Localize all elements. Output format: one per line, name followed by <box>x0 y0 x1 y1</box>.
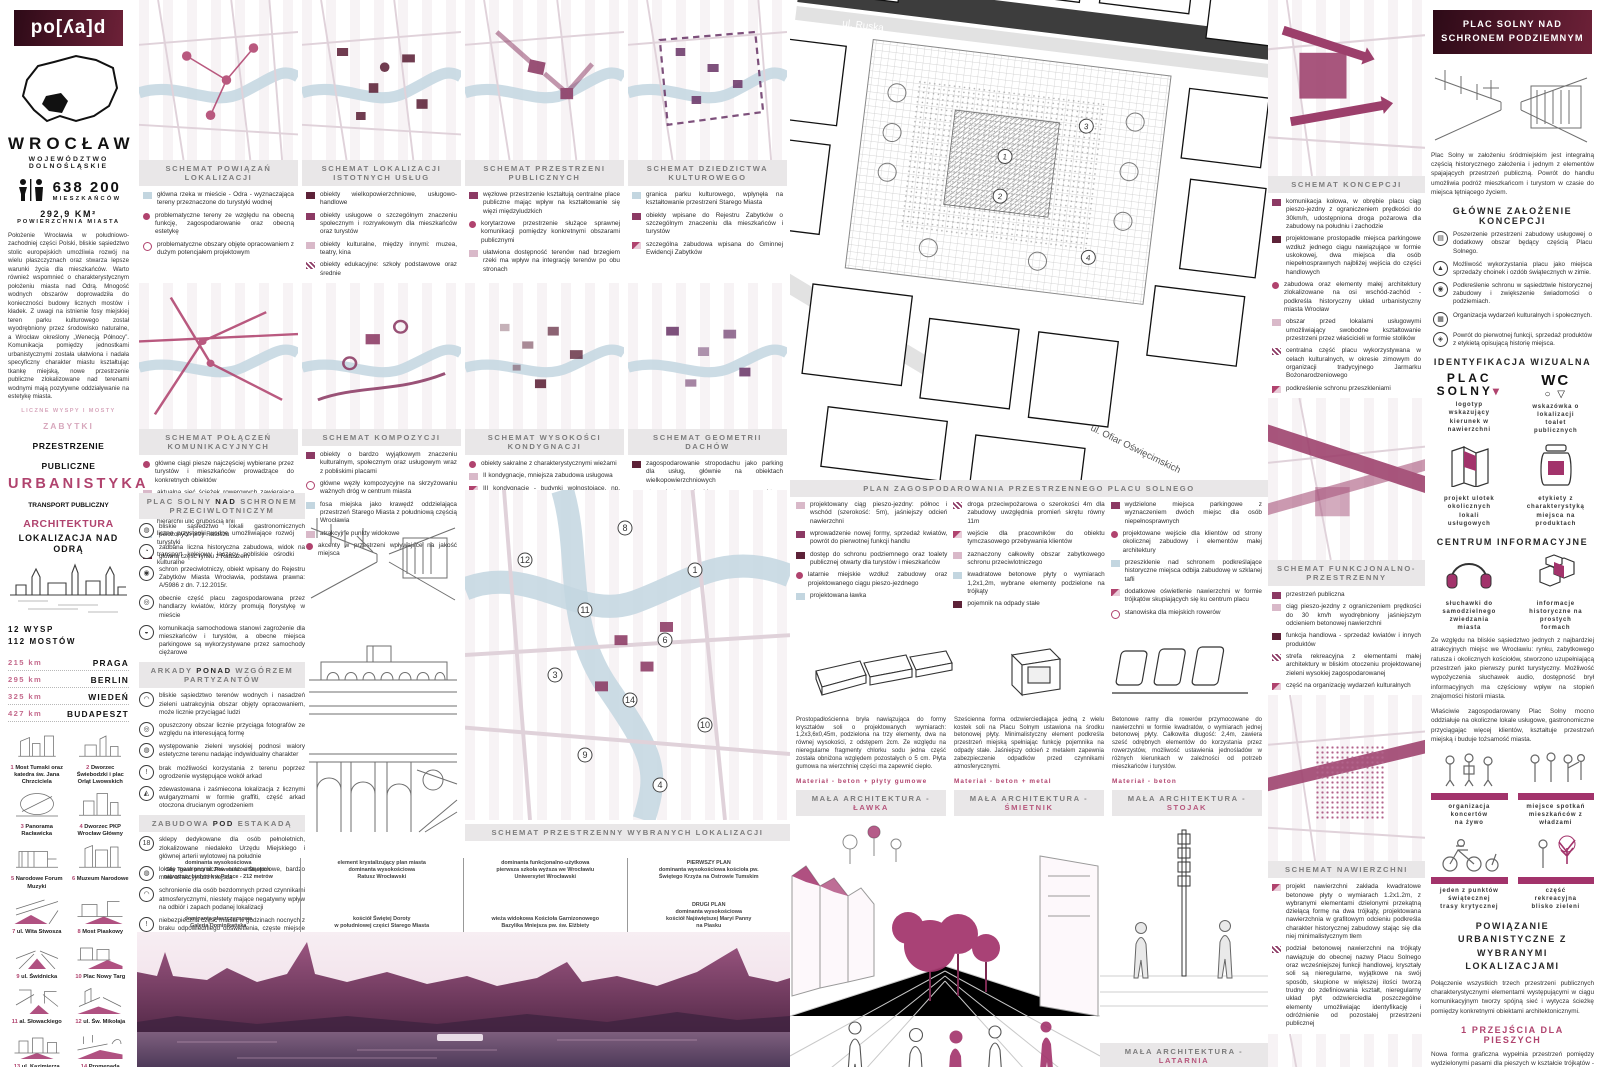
legend-item: obiekty wpisane do Rejestru Zabytków o s… <box>632 212 783 237</box>
distance-list: 215 kmPRAGA 295 kmBERLIN 325 kmWIEDEŃ 42… <box>8 654 129 722</box>
map-powiazan-lokalizacji <box>139 0 298 160</box>
svg-text:1: 1 <box>692 565 697 575</box>
bench-title: MAŁA ARCHITEKTURA - ŁAWKA <box>796 790 946 816</box>
legend-item: granica parku kulturowego, wpłynęła na k… <box>632 191 783 208</box>
culture-icon <box>306 242 315 249</box>
legend-item: obszar przed lokalami usługowymi umożliw… <box>1272 318 1421 343</box>
bin-description: Sześcienna forma odzwierciedlająca jedną… <box>954 717 1104 772</box>
section-plac-solny-schron: PLAC SOLNY NAD SCHRONEM PRZECIWLOTNICZYM… <box>137 493 307 657</box>
event-zone-icon <box>1272 683 1281 690</box>
concept-item: ▦Organizacja wydarzeń kulturalnych i spo… <box>1433 312 1592 327</box>
bike-station-icon <box>1111 610 1120 619</box>
map-kompozycji <box>302 283 461 429</box>
sacral-icon <box>469 461 476 468</box>
axis-icon <box>1272 282 1279 289</box>
jar-icon <box>1538 443 1574 487</box>
pictogram: miejsce spotkań mieszkańców z władzami <box>1518 750 1595 827</box>
composition-node-icon <box>306 481 315 490</box>
landmark-item: 9 ul. Świdnicka <box>8 939 66 981</box>
concept-schematics-column: SCHEMAT KONCEPCJI komunikacja kołowa, w … <box>1268 0 1425 1067</box>
glazing-icon <box>1111 560 1120 567</box>
przejscia-title: 1 PRZEJŚCIA DLA PIESZYCH <box>1431 1025 1594 1045</box>
keyword: TRANSPORT PUBLICZNY <box>28 502 109 509</box>
schematic-title: SCHEMAT PRZESTRZENI PUBLICZNYCH <box>465 160 624 186</box>
legend-item: korytarzowe przestrzenie służące sprawne… <box>469 220 620 245</box>
legend-item: stanowiska dla miejskich rowerów <box>1111 609 1262 619</box>
svg-text:14: 14 <box>625 695 635 705</box>
lantern-visualisation <box>1100 816 1268 1043</box>
site-analysis-texts: PLAC SOLNY NAD SCHRONEM PRZECIWLOTNICZYM… <box>137 490 307 858</box>
info-centre-grid: słuchawki do samodzielnego zwiedzania mi… <box>1431 552 1594 632</box>
wc-logotype: WC <box>1518 372 1595 389</box>
parking-icon <box>1111 502 1120 509</box>
koncepcja-legend: komunikacja kołowa, w obrębie placu ciąg… <box>1272 198 1421 393</box>
funkcjonalno-legend: przestrzeń publiczna ciąg pieszo-jezdny … <box>1272 591 1421 690</box>
legend-item: zagospodarowanie stropodachu jako parkin… <box>632 460 783 485</box>
competition-board: po[ʎa]d WROCŁAW WOJEWÓDZTWO DOLNOŚLĄSKIE… <box>0 0 1600 1067</box>
estakada-sketch <box>307 740 459 844</box>
concept-item: ◉Podkreślenie schronu w sąsiedztwie hist… <box>1433 282 1592 307</box>
legend-item: obiekty sakralne z charakterystycznymi w… <box>469 460 620 468</box>
legend-item: dodatkowe oświetlenie nawierzchni w form… <box>1111 588 1262 605</box>
corridor-icon <box>469 221 476 228</box>
funkcjonalno-title: SCHEMAT FUNKCJONALNO-PRZESTRZENNY <box>1268 560 1425 586</box>
legend-item: wprowadzenie nowej formy, sprzedaż kwiat… <box>796 530 947 547</box>
tree-icon: ◍ <box>139 743 154 758</box>
area-value: 292,9 KM² <box>8 209 129 219</box>
concept-item: ▲Możliwość wykorzystania placu jako miej… <box>1433 261 1592 277</box>
public-space-icon <box>1272 592 1281 599</box>
koncepcja-title: SCHEMAT KONCEPCJI <box>1268 176 1425 193</box>
feature-item: ◉schron przeciwlotniczy, obiekt wpisany … <box>139 566 305 591</box>
legend-item: główne ciągi piesze najczęściej wybieran… <box>143 460 294 485</box>
trade-function-icon <box>1272 633 1281 640</box>
spatial-scheme-map: 81211163141094 SCHEMAT PRZESTRZENNY WYBR… <box>465 490 790 858</box>
concept-intro: Plac Solny w założeniu śródmiejskim jest… <box>1431 151 1594 197</box>
legend-item: komunikacja kołowa, w obrębie placu ciąg… <box>1272 198 1421 231</box>
service-frontage-icon <box>1272 319 1281 326</box>
svg-text:9: 9 <box>582 750 587 760</box>
glowne-zalozenie-list: ▤Poszerzenie przestrzeni zabudowy usługo… <box>1433 231 1592 348</box>
legend-item: przestrzeń publiczna <box>1272 591 1421 599</box>
schematics-row-1: SCHEMAT POWIĄZAŃ LOKALIZACJI główna rzek… <box>137 0 790 283</box>
nawierzchnia-legend: projekt nawierzchni zakłada kwadratowe b… <box>1272 883 1421 1029</box>
schematic-legend: granica parku kulturowego, wpłynęła na k… <box>632 191 783 257</box>
riverside-icon <box>469 250 478 257</box>
feature-item: ◎opuszczony obszar licznie przyciąga fot… <box>139 722 305 738</box>
distance-row: 215 kmPRAGA <box>8 654 129 671</box>
legend-item: część na organizację wydarzeń kulturalny… <box>1272 682 1421 690</box>
schematic-title: SCHEMAT GEOMETRII DACHÓW <box>628 429 787 455</box>
centrum-title: CENTRUM INFORMACYJNE <box>1431 537 1594 547</box>
info-item: słuchawki do samodzielnego zwiedzania mi… <box>1431 552 1508 632</box>
identity-item: etykiety z charakterystyką miejsca na pr… <box>1518 443 1595 527</box>
bin-title: MAŁA ARCHITEKTURA - ŚMIETNIK <box>954 790 1104 816</box>
key-object-icon <box>306 452 315 459</box>
legend-item: problematyczne obszary objęte opracowani… <box>143 241 294 258</box>
schematic-tile: SCHEMAT PRZESTRZENI PUBLICZNYCH węzłowe … <box>463 0 626 283</box>
legend-item: obiekty kulturalne, między innymi: muzea… <box>306 241 457 258</box>
nawierzchnia-title: SCHEMAT NAWIERZCHNI <box>1268 861 1425 878</box>
feature-item: ◔zadbana liczna historyczna zabudowa, wi… <box>139 544 305 560</box>
legend-item: wydzielone miejsca parkingowe z wyznacze… <box>1111 501 1262 526</box>
svg-text:12: 12 <box>520 555 530 565</box>
schematic-legend: główna rzeka w mieście - Odra - wyznacza… <box>143 191 294 257</box>
section-title: PLAC SOLNY NAD SCHRONEM PRZECIWLOTNICZYM <box>139 493 305 519</box>
landmark-item: 3 Panorama Racławicka <box>8 789 66 838</box>
panorama-label: DRUGI PLAN dominanta wysokościowa kośció… <box>631 902 788 930</box>
concept-item: ◈Powrót do pierwotnej funkcji, sprzedaż … <box>1433 332 1592 348</box>
lantern-column: MAŁA ARCHITEKTURA - LATARNIA Wysoka mini… <box>1100 816 1268 1067</box>
two-storey-icon <box>469 473 478 480</box>
keyword: URBANISTYKA <box>8 475 129 493</box>
plac-solny-sketch <box>1431 60 1591 146</box>
pedestrian-lane-icon <box>796 502 805 509</box>
bench-material: Materiał - beton + płyty gumowe <box>796 778 946 785</box>
landmark-item: 11 al. Słowackiego <box>8 984 66 1026</box>
bench-description: Prostopadłościenna bryła nawiązująca do … <box>796 717 946 772</box>
bike-route-icon <box>1436 834 1502 876</box>
region-subtitle: WOJEWÓDZTWO DOLNOŚLĄSKIE <box>8 156 129 170</box>
pedestrian-route-icon <box>143 461 150 468</box>
keyword: ZABYTKI <box>43 421 94 431</box>
schematic-tile: SCHEMAT DZIEDZICTWA KULTUROWEGO granica … <box>626 0 789 283</box>
map-nawierzchni <box>1268 695 1425 861</box>
site-plan-drawing: 1234 ul. Ruska ul. Ofiar Oświęcimskich <box>790 0 1268 480</box>
furniture-descriptions: Prostopadłościenna bryła nawiązująca do … <box>790 711 1268 785</box>
population-value: 638 200 <box>53 179 122 196</box>
client-entrance-icon <box>1111 531 1118 538</box>
site-analysis-zone: PLAC SOLNY NAD SCHRONEM PRZECIWLOTNICZYM… <box>137 490 790 858</box>
landmark-item: 4 Dworzec PKP Wrocław Główny <box>72 789 130 838</box>
legend-item: szczególna zabudowa wpisana do Gminnej E… <box>632 241 783 258</box>
site-sketches <box>307 490 465 858</box>
recreation-zone-icon <box>1272 654 1281 661</box>
headphones-icon <box>1443 552 1495 592</box>
lantern-icon <box>796 572 803 579</box>
legend-item: centralna część placu wykorzystywana w c… <box>1272 347 1421 380</box>
monument-icon: ◉ <box>139 566 154 581</box>
furniture-title-bars: MAŁA ARCHITEKTURA - ŁAWKA MAŁA ARCHITEKT… <box>790 785 1268 816</box>
keyword: PRZESTRZENIE PUBLICZNE <box>33 441 105 471</box>
spatial-scheme-title: SCHEMAT PRZESTRZENNY WYBRANYCH LOKALIZAC… <box>465 824 790 841</box>
population-stat: 638 200 MIESZKAŃCÓW <box>8 178 129 202</box>
poland-map <box>16 54 121 132</box>
concept-item: ▤Poszerzenie przestrzeni zabudowy usługo… <box>1433 231 1592 256</box>
feature-item: ◎obecnie część placu zagospodarowana prz… <box>139 595 305 620</box>
przejscia-text: Nowa forma graficzna wypełnia przestrzeń… <box>1431 1050 1594 1067</box>
plan-legend: projektowany ciąg pieszo-jezdny: północ … <box>790 497 1268 627</box>
svg-text:11: 11 <box>580 605 589 615</box>
lantern-title: MAŁA ARCHITEKTURA - LATARNIA <box>1100 1043 1268 1067</box>
ponad-logo: po[ʎa]d <box>14 10 123 46</box>
furniture-sketches <box>790 627 1268 711</box>
legend-item: strefa rekreacyjna z elementami małej ar… <box>1272 653 1421 678</box>
schematic-title: SCHEMAT KOMPOZYCJI <box>302 429 461 446</box>
panorama-label: PIERWSZY PLAN dominanta wysokościowa koś… <box>631 860 788 881</box>
pictogram: jeden z punktów świątecznej trasy krytyc… <box>1431 834 1508 911</box>
landmark-item: 2 Dworzec Świebodzki i plac Orląt Lwowsk… <box>72 730 130 786</box>
arkady-bridge-sketch <box>307 622 459 726</box>
salt-pattern-icon <box>1272 946 1281 953</box>
map-koncepcji <box>1268 0 1425 176</box>
distance-row: 295 kmBERLIN <box>8 671 129 688</box>
legend-item: ciąg pieszo-jezdny z ograniczeniem prędk… <box>1272 603 1421 628</box>
feature-item: !brak możliwości korzystania z terenu po… <box>139 765 305 781</box>
svg-text:6: 6 <box>662 635 667 645</box>
panorama-label: element krystalizujący plan miasta domin… <box>304 860 461 881</box>
problem-area-icon <box>143 213 150 220</box>
river-swatch-icon <box>143 192 152 199</box>
concrete-slab-icon <box>953 572 962 579</box>
christmas-tree-icon: ▲ <box>1433 261 1448 276</box>
city-intro-paragraph: Położenie Wrocławia w południowo-zachodn… <box>8 232 129 402</box>
landmark-item: 14 Promenada Staromiejska <box>72 1029 130 1067</box>
services-icon <box>306 213 315 220</box>
schematic-title: SCHEMAT LOKALIZACJI ISTOTNYCH USŁUG <box>302 160 461 186</box>
bunker-outline-icon <box>953 552 962 559</box>
powiazanie-title: POWIĄZANIE URBANISTYCZNE Z WYBRANYMI LOK… <box>1431 920 1594 974</box>
pictogram: część rekreacyjna blisko zieleni <box>1518 834 1595 911</box>
legend-item: zaznaczony całkowity obszar zabytkowego … <box>953 551 1104 568</box>
centrum-paragraph-1: Ze względu na bliskie sąsiedztwo jednych… <box>1431 636 1594 701</box>
centrum-paragraph-2: Właściwie zagospodarowany Plac Solny moc… <box>1431 707 1594 744</box>
glazing-accent-icon <box>1272 386 1281 393</box>
legend-item: II kondygnacje, mniejsza zabudowa usługo… <box>469 472 620 480</box>
legend-item: zabudowa oraz elementy małej architektur… <box>1272 281 1421 314</box>
keyword: LICZNE WYSPY I MOSTY <box>8 408 129 415</box>
parking-steps-icon <box>1272 236 1281 243</box>
bench-sketch <box>808 637 958 701</box>
legend-item: projektowana ławka <box>796 592 947 600</box>
landmark-item: 13 ul. Kazimierza Pułaskiego <box>8 1029 66 1067</box>
feature-item: ◭zdewastowana i zaśmiecona lokalizacja z… <box>139 786 305 811</box>
keyword: LOKALIZACJA NAD ODRĄ <box>8 533 129 555</box>
map-polaczen-komunikacyjnych <box>139 283 298 429</box>
pictogram: organizacja koncertów na żywo <box>1431 750 1508 827</box>
calendar-events-icon: ▦ <box>1433 312 1448 327</box>
registry-monument-icon <box>632 213 641 220</box>
legend-item: dostęp do schronu podziemnego oraz toale… <box>796 551 947 568</box>
section-title: ZABUDOWA POD ESTAKADĄ <box>139 815 305 832</box>
bridges-stat: 112 MOSTÓW <box>8 637 129 646</box>
schematic-title: SCHEMAT POŁĄCZEŃ KOMUNIKACYJNYCH <box>139 429 298 455</box>
panorama-labels: dominanta wysokościowa Sky Tower przy ul… <box>137 858 790 932</box>
map-dziedzictwa-kulturowego <box>628 0 787 160</box>
shop-expansion-icon: ▤ <box>1433 231 1448 246</box>
shelter-access-icon <box>796 552 805 559</box>
concert-icon <box>1436 750 1502 792</box>
legend-item: przeszklenie nad schronem podkreślające … <box>1111 559 1262 584</box>
legend-item: wejście dla pracowników do obiektu tymcz… <box>953 530 1104 547</box>
info-item: informacje historyczne na prostych forma… <box>1518 552 1595 632</box>
section-arkady: ARKADY PONAD WZGÓRZEM PARTYZANTÓW ◠blisk… <box>137 662 307 810</box>
landmark-item: 8 Most Piaskowy <box>72 894 130 936</box>
staff-entrance-icon <box>953 531 962 538</box>
legend-item: projektowane wejście dla klientów od str… <box>1111 530 1262 555</box>
node-space-icon <box>469 192 478 199</box>
water-green-icon: ◠ <box>139 692 154 707</box>
product-label-icon: ◈ <box>1433 332 1448 347</box>
leaflet-icon <box>1446 443 1492 487</box>
schematic-legend: węzłowe przestrzenie kształtują centraln… <box>469 191 620 274</box>
legend-item: obiekty edukacyjne: szkoły podstawowe or… <box>306 261 457 278</box>
svg-text:8: 8 <box>622 523 627 533</box>
legend-item: główna rzeka w mieście - Odra - wyznacza… <box>143 191 294 208</box>
bench-icon <box>796 593 805 600</box>
fire-road-icon <box>953 502 962 509</box>
bunker-awareness-icon: ◉ <box>1433 282 1448 297</box>
area-label: POWIERZCHNIA MIASTA <box>8 219 129 225</box>
schematic-title: SCHEMAT WYSOKOŚCI KONDYGNACJI <box>465 429 624 455</box>
svg-text:3: 3 <box>552 670 557 680</box>
gastronomy-icon: ◍ <box>139 523 154 538</box>
map-wysokosci-kondygnacji <box>465 283 624 429</box>
feature-item: ◠bliskie sąsiedztwo terenów wodnych i na… <box>139 692 305 717</box>
legend-item: problematyczne tereny ze względu na obec… <box>143 212 294 237</box>
landmark-grid: 1 Most Tumski oraz katedra św. Jana Chrz… <box>8 730 129 1067</box>
powiazanie-intro: Połączenie wszystkich trzech przestrzeni… <box>1431 979 1594 1016</box>
landmark-item: 7 ul. Wita Stwosza <box>8 894 66 936</box>
landmark-item: 12 ul. Św. Mikołaja <box>72 984 130 1026</box>
map-funkcjonalno-przestrzenny <box>1268 398 1425 560</box>
identity-item: WC ○ ▽ wskazówka o lokalizacji toalet pu… <box>1518 372 1595 435</box>
car-warning-icon: ◒ <box>139 625 154 640</box>
road-icon <box>1272 199 1281 206</box>
legend-item: projekt nawierzchni zakłada kwadratowe b… <box>1272 883 1421 941</box>
info-cubes-icon <box>1530 552 1582 592</box>
panorama-label: wieża widokowa Kościoła Garnizonowego Ba… <box>467 916 624 930</box>
map-istotnych-uslug <box>302 0 461 160</box>
identyfikacja-title: IDENTYFIKACJA WIZUALNA <box>1431 357 1594 367</box>
municipal-registry-icon <box>632 242 641 249</box>
landmark-item: 1 Most Tumski oraz katedra św. Jana Chrz… <box>8 730 66 786</box>
greenery-icon <box>1523 834 1589 876</box>
legend-item: pojemnik na odpady stałe <box>953 600 1104 608</box>
wc-symbols: ○ ▽ <box>1518 389 1595 400</box>
feature-item: ◍występowanie zieleni wysokiej podnosi w… <box>139 743 305 759</box>
panorama-label: kościół Świętej Doroty w południowej czę… <box>304 916 461 930</box>
design-potential-icon <box>143 242 152 251</box>
meeting-icon <box>1523 750 1589 792</box>
legend-item: podkreślenie schronu przeszkleniami <box>1272 385 1421 393</box>
city-title: WROCŁAW <box>8 134 129 154</box>
legend-item: latarnie miejskie wzdłuż zabudowy oraz p… <box>796 571 947 588</box>
distance-row: 325 kmWIEDEŃ <box>8 688 129 705</box>
warning-icon: ! <box>139 765 154 780</box>
schematic-tile: SCHEMAT LOKALIZACJI ISTOTNYCH USŁUG obie… <box>300 0 463 283</box>
rack-title: MAŁA ARCHITEKTURA - STOJAK <box>1112 790 1262 816</box>
landmark-item: 10 Plac Nowy Targ <box>72 939 130 981</box>
legend-item: kwadratowe betonowe płyty o wymiarach 1,… <box>953 571 1104 596</box>
legend-item: droga przeciwpożarowa o szerokości 4m dl… <box>953 501 1104 526</box>
triangle-lighting-icon <box>1111 589 1120 596</box>
logo-text: po[ʎa]d <box>31 17 107 39</box>
education-icon <box>306 262 315 269</box>
map-oswietlenia <box>1268 1034 1425 1067</box>
distance-row: 427 kmBUDAPESZT <box>8 705 129 722</box>
svg-text:10: 10 <box>700 720 710 730</box>
legend-item: projektowany ciąg pieszo-jezdny: północ … <box>796 501 947 526</box>
panorama-label: dominanta wysokościowa Sky Tower przy ul… <box>140 860 297 881</box>
slab-triangle-icon <box>1272 884 1281 891</box>
plan-title: PLAN ZAGOSPODAROWANIA PRZESTRZENNEGO PLA… <box>790 480 1268 497</box>
map-geometrii-dachow <box>628 283 787 429</box>
schematic-title: SCHEMAT POWIĄZAŃ LOKALIZACJI <box>139 160 298 186</box>
panorama-label: dominanta płaszczyznowa Galeria Dominika… <box>140 916 297 930</box>
glowne-zalozenie-title: GŁÓWNE ZAŁOŻENIE KONCEPCJI <box>1431 206 1594 226</box>
retail-icon <box>306 192 315 199</box>
visualisations: MAŁA ARCHITEKTURA - LATARNIA Wysoka mini… <box>790 816 1268 1067</box>
legend-item: funkcja handlowa - sprzedaż kwiatów i in… <box>1272 632 1421 649</box>
concept-summary-column: PLAC SOLNY NAD SCHRONEM PODZIEMNYM Plac … <box>1425 0 1600 1067</box>
boat <box>437 1034 483 1041</box>
schematic-tile: SCHEMAT POWIĄZAŃ LOKALIZACJI główna rzek… <box>137 0 300 283</box>
bike-rack-sketch <box>1110 637 1250 701</box>
left-info-column: po[ʎa]d WROCŁAW WOJEWÓDZTWO DOLNOŚLĄSKIE… <box>0 0 137 1067</box>
legend-item: obiekty wielkopowierzchniowe, usługowo-h… <box>306 191 457 208</box>
islands-stat: 12 WYSP <box>8 625 129 634</box>
plac-solny-logotype: PLACSOLNY▾ <box>1431 372 1508 398</box>
adult-shop-icon: 18 <box>139 836 154 851</box>
plaza-visualisation <box>790 816 1100 1067</box>
rack-description: Betonowe ramy dla rowerów przymocowane d… <box>1112 717 1262 772</box>
legend-item: podział betonowej nawierzchni na trójkąt… <box>1272 945 1421 1028</box>
identity-item: projekt ulotek okolicznych lokali usługo… <box>1431 443 1508 527</box>
wroclaw-skyline-sketch <box>8 555 129 617</box>
flowers-icon: ◎ <box>139 595 154 610</box>
panorama-photo <box>137 932 790 1067</box>
section-title: ARKADY PONAD WZGÓRZEM PARTYZANTÓW <box>139 662 305 688</box>
people-icon <box>16 178 46 202</box>
clock-icon: ◔ <box>139 544 154 559</box>
identity-item: PLACSOLNY▾ logotyp wskazujący kierunek w… <box>1431 372 1508 435</box>
culture-park-border-icon <box>632 192 641 199</box>
legend-item: ułatwiona dostępność terenów nad brzegie… <box>469 249 620 274</box>
concept-header: PLAC SOLNY NAD SCHRONEM PODZIEMNYM <box>1433 10 1592 54</box>
schematic-title: SCHEMAT DZIEDZICTWA KULTUROWEGO <box>628 160 787 186</box>
visual-identity-grid: PLACSOLNY▾ logotyp wskazujący kierunek w… <box>1431 372 1594 528</box>
salt-crystal-dots <box>1315 745 1386 820</box>
landmark-item: 6 Muzeum Narodowe <box>72 841 130 890</box>
schematic-legend: obiekty wielkopowierzchniowe, usługowo-h… <box>306 191 457 278</box>
camera-icon: ◎ <box>139 722 154 737</box>
legend-item: obiekty o bardzo wyjątkowym znaczeniu ku… <box>306 451 457 476</box>
bin-sketch <box>994 637 1074 701</box>
flat-roof-parking-icon <box>632 461 641 468</box>
numbered-markers: 81211163141094 <box>465 490 790 820</box>
keyword-cloud: LICZNE WYSPY I MOSTY ZABYTKI PRZESTRZENI… <box>8 408 129 555</box>
map-przestrzeni-publicznych <box>465 0 624 160</box>
shared-lane-icon <box>1272 604 1281 611</box>
masterplan-section: 1234 ul. Ruska ul. Ofiar Oświęcimskich P… <box>790 0 1268 1067</box>
population-label: MIESZKAŃCÓW <box>53 196 122 202</box>
legend-item: obiekty usługowe o szczególnym znaczeniu… <box>306 212 457 237</box>
rack-material: Materiał - beton <box>1112 778 1262 785</box>
plac-solny-street-sketch <box>307 508 459 608</box>
feature-item: ◒komunikacja samochodowa stanowi zagroże… <box>139 625 305 658</box>
flower-stand-icon <box>796 531 805 538</box>
svg-text:4: 4 <box>657 780 662 790</box>
legend-item: projektowane prostopadłe miejsca parking… <box>1272 235 1421 277</box>
activity-pictograms: organizacja koncertów na żywo miejsce sp… <box>1431 750 1594 911</box>
vandalism-icon: ◭ <box>139 786 154 801</box>
bin-material: Materiał - beton + metal <box>954 778 1104 785</box>
feature-item: ◍bliskie sąsiedztwo lokali gastronomiczn… <box>139 523 305 539</box>
waste-bin-icon <box>953 601 962 608</box>
legend-item: węzłowe przestrzenie kształtują centraln… <box>469 191 620 216</box>
panorama-label: dominanta funkcjonalno-użytkowa pierwsza… <box>467 860 624 881</box>
